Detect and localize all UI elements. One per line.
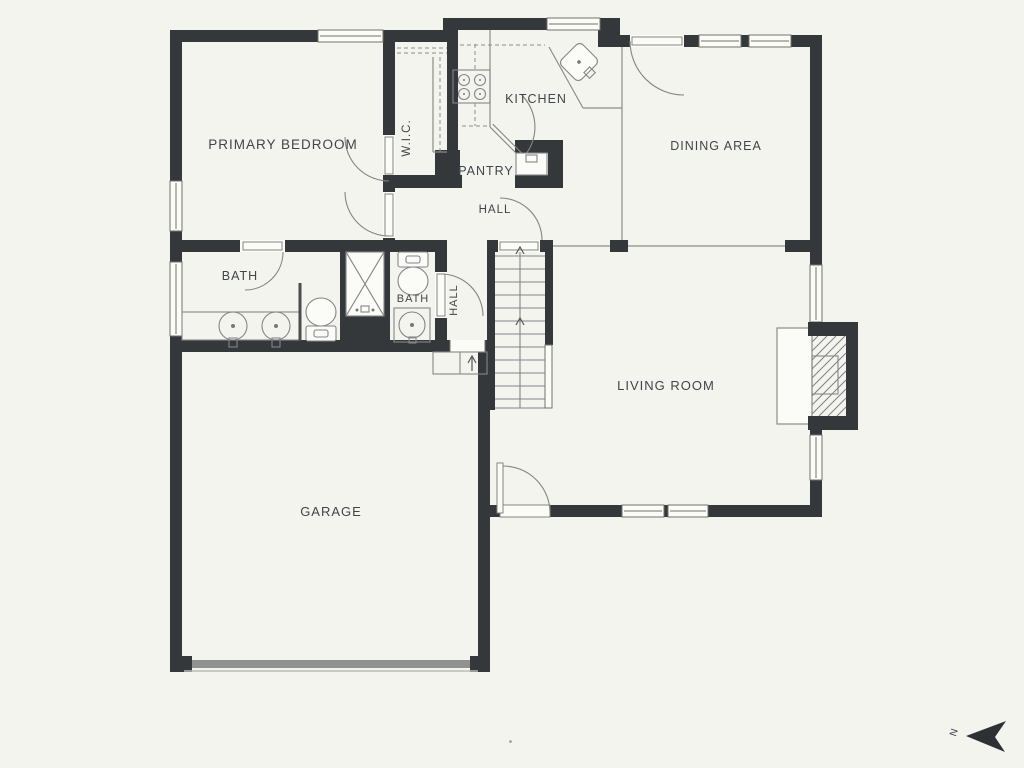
toilet-tank — [306, 326, 336, 341]
wall-segment — [435, 150, 460, 188]
burner-dot — [479, 79, 481, 81]
window — [170, 262, 182, 336]
appliance-nook-icon — [516, 153, 547, 175]
wall-segment — [810, 35, 822, 265]
toilet-bowl — [398, 267, 428, 295]
room-label-primary-bedroom: PRIMARY BEDROOM — [208, 137, 358, 152]
vanity-sink-icon — [394, 308, 430, 343]
room-label-pantry: PANTRY — [458, 164, 514, 178]
wall-segment — [598, 18, 620, 47]
stair-railing — [545, 345, 552, 408]
windows — [170, 18, 822, 517]
room-label-dining-area: DINING AREA — [670, 139, 762, 153]
door-leaf — [437, 274, 445, 316]
room-label-bath-primary: BATH — [222, 269, 258, 283]
wall-segment — [550, 505, 622, 517]
closet-shelf-dashed — [397, 48, 447, 53]
wall-segment — [708, 505, 822, 517]
door-garage-entry — [450, 340, 485, 352]
wall-segment — [390, 240, 447, 252]
north-arrow-label: N — [948, 727, 961, 738]
room-label-bath-hall: BATH — [397, 293, 430, 305]
wall-segment — [170, 30, 182, 181]
door-leaf — [243, 242, 282, 250]
sink-drain — [410, 323, 414, 327]
sink-drain — [274, 324, 278, 328]
door-leaf — [385, 137, 393, 174]
sink-drain — [231, 324, 235, 328]
wall-segment — [383, 42, 395, 135]
wall-segment — [785, 240, 810, 252]
garage-door-panel — [192, 660, 470, 668]
wall-segment — [435, 252, 447, 274]
wall-segment — [684, 35, 699, 47]
window — [810, 265, 822, 322]
toilet-icon — [398, 252, 428, 295]
fireplace-hearth — [777, 328, 812, 424]
wall-segment — [610, 240, 628, 252]
window — [749, 35, 791, 47]
walls — [170, 18, 822, 672]
kitchen-sink-icon — [558, 41, 603, 86]
floor-plan-canvas: PRIMARY BEDROOM W.I.C. KITCHEN PANTRY DI… — [0, 0, 1024, 768]
firebox — [812, 356, 838, 394]
small-dot — [509, 740, 512, 743]
door-living-exterior — [497, 463, 550, 517]
wall-segment — [618, 35, 630, 47]
nook-outline — [516, 153, 547, 175]
wall-segment — [170, 336, 182, 672]
wall-segment — [170, 656, 192, 672]
fireplace-wall — [846, 322, 858, 430]
shower-knob — [356, 309, 359, 312]
fireplace-hatch — [812, 336, 846, 416]
toilet-bowl — [306, 298, 336, 326]
wall-segment — [515, 175, 548, 188]
door-opening — [450, 340, 485, 352]
wall-segment — [470, 656, 490, 672]
window — [810, 435, 822, 480]
fireplace-with-hearth-icon — [777, 322, 858, 430]
window — [547, 18, 600, 30]
window — [318, 30, 383, 42]
door-leaf — [632, 37, 682, 45]
door-primary-bedroom — [345, 192, 395, 238]
door-leaf — [497, 463, 503, 513]
door-swing-arc — [345, 192, 389, 236]
wall-segment — [443, 18, 547, 30]
north-arrow-shape — [966, 721, 1006, 752]
wall-segment — [545, 240, 553, 345]
door-dining-exterior — [630, 35, 684, 95]
toilet-tank — [398, 252, 428, 267]
toilet-icon — [306, 298, 336, 341]
burner-dot — [463, 79, 465, 81]
window — [622, 505, 664, 517]
wall-segment — [378, 30, 450, 42]
range-cooktop-icon — [453, 70, 490, 103]
north-arrow-icon: N — [948, 721, 1006, 752]
door-opening — [500, 505, 550, 517]
room-label-garage: GARAGE — [300, 504, 362, 519]
floor-plan-svg: PRIMARY BEDROOM W.I.C. KITCHEN PANTRY DI… — [0, 0, 1024, 768]
shower-knob — [372, 309, 375, 312]
door-leaf — [385, 194, 393, 236]
window — [170, 181, 182, 231]
upper-cabinet-dashed — [460, 44, 545, 126]
fireplace-wall — [808, 416, 858, 430]
wall-segment — [741, 35, 749, 47]
walk-in-shower-icon — [346, 252, 384, 316]
wall-segment — [170, 30, 320, 42]
window — [668, 505, 708, 517]
room-label-hall-lower: HALL — [448, 284, 460, 316]
room-label-hall-upper: HALL — [479, 204, 512, 216]
door-swing-arc — [630, 41, 684, 95]
room-label-kitchen: KITCHEN — [505, 92, 567, 106]
window — [699, 35, 741, 47]
wall-segment — [170, 240, 240, 252]
staircase-up-icon — [495, 247, 552, 408]
wall-segment — [664, 505, 668, 517]
wall-segment — [285, 240, 340, 252]
wall-segment — [487, 240, 495, 410]
burner-dot — [463, 93, 465, 95]
room-label-wic: W.I.C. — [401, 119, 413, 156]
burner-dot — [479, 93, 481, 95]
room-label-living-room: LIVING ROOM — [617, 378, 715, 393]
doors — [240, 35, 684, 517]
vanity-counter — [182, 312, 300, 340]
garage-door-icon — [184, 660, 478, 671]
wall-segment — [548, 140, 563, 188]
